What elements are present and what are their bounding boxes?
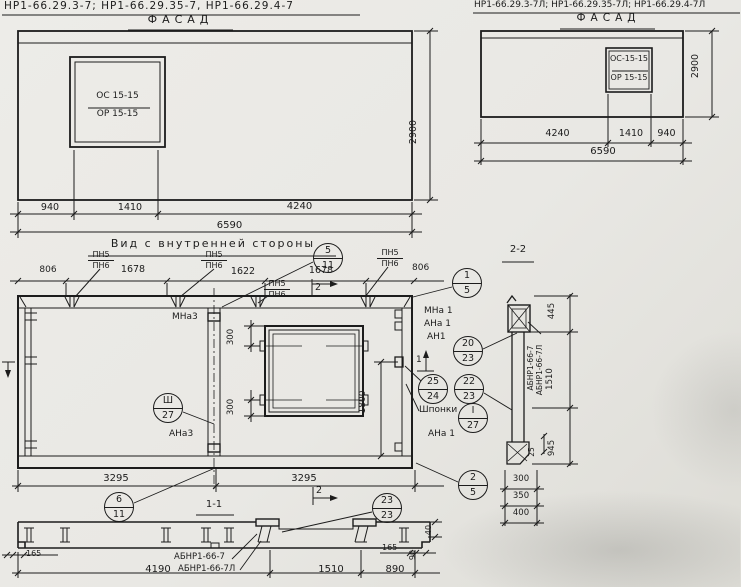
facade-right-title: НР1-66.29.3-7Л; НР1-66.29.35-7Л; НР1-66.… <box>474 1 740 11</box>
dim-300-top: 300 <box>227 327 237 347</box>
callout-bottom: 11 <box>314 259 342 273</box>
pn5-label: ПН5 <box>201 250 227 261</box>
callout-sh-27: Ш27 <box>153 393 183 423</box>
facade-right-drawing <box>473 13 740 165</box>
dim-350-22: 350 <box>504 492 538 501</box>
anchor-label-pn: ПН5ПН6 <box>201 250 227 270</box>
facade-right-window-mark-bottom: ОР 15-15 <box>608 74 650 83</box>
label-mna3: МНа3 <box>172 313 206 323</box>
facade-left-window-mark-bottom: ОР 15-15 <box>80 110 155 120</box>
callout-top: 1 <box>453 269 481 284</box>
pn6-label: ПН6 <box>377 259 403 269</box>
callout-bottom: 5 <box>453 284 481 298</box>
dim-25: 25 <box>528 444 536 460</box>
dim-1510: 1510 <box>310 564 352 575</box>
callout-bottom: 23 <box>454 352 482 366</box>
anchor-label-pn: ПН5ПН6 <box>264 279 290 299</box>
callout-bottom: 11 <box>105 508 133 522</box>
dim-6590-r: 6590 <box>572 146 634 157</box>
pn6-label: ПН6 <box>264 290 290 300</box>
section-1-1-title: 1-1 <box>196 499 232 510</box>
callout-bottom: 27 <box>154 409 182 423</box>
dim-4240: 4240 <box>262 201 337 212</box>
pn5-label: ПН5 <box>88 250 114 261</box>
callout-top: 2 <box>459 471 487 486</box>
callout-top: I <box>459 404 487 419</box>
label-ana1-bottom: АНа 1 <box>428 430 462 440</box>
section-2-2-title: 2-2 <box>502 244 534 255</box>
dim-1800: 1800 <box>359 386 369 418</box>
inner-view-title: Вид с внутренней стороны <box>92 238 334 250</box>
callout-bottom: 5 <box>459 486 487 500</box>
dim-300-22: 300 <box>504 475 538 484</box>
dim-3295-left: 3295 <box>86 473 146 484</box>
dim-940-r: 940 <box>650 129 683 139</box>
section-2-marker-top: 2 <box>315 283 327 293</box>
callout-1-5: 15 <box>452 268 482 298</box>
facade-left-window-mark-top: ОС 15-15 <box>80 92 155 102</box>
callout-25-24: 2524 <box>418 374 448 404</box>
facade-left-title: НР1-66.29.3-7; НР1-66.29.35-7, НР1-66.29… <box>4 1 364 13</box>
pn6-label: ПН6 <box>201 261 227 271</box>
dim-1410-r: 1410 <box>612 129 650 139</box>
facade-right-window-mark-top: ОС-15-15 <box>608 55 650 64</box>
callout-1-27: I27 <box>458 403 488 433</box>
callout-top: 5 <box>314 244 342 259</box>
anchor-label-pn: ПН5ПН6 <box>88 250 114 270</box>
callout-bottom: 27 <box>459 419 487 433</box>
dim-806-right: 806 <box>412 264 444 274</box>
callout-top: 23 <box>373 494 401 509</box>
dim-4190: 4190 <box>138 564 178 575</box>
pn6-label: ПН6 <box>88 261 114 271</box>
callout-5-11: 511 <box>313 243 343 273</box>
dim-2900: 2900 <box>409 112 421 152</box>
callout-top: 6 <box>105 493 133 508</box>
dim-1510-22: 1510 <box>546 357 555 401</box>
callout-20-23: 2023 <box>453 336 483 366</box>
section-2-marker-bottom: 2 <box>316 486 328 496</box>
dim-90-right: 90 <box>409 548 417 562</box>
callout-6-11: 611 <box>104 492 134 522</box>
callout-bottom: 23 <box>373 509 401 523</box>
drawing-sheet: НР1-66.29.3-7; НР1-66.29.35-7, НР1-66.29… <box>0 0 741 587</box>
callout-top: Ш <box>154 394 182 409</box>
callout-2-5: 25 <box>458 470 488 500</box>
pn5-label: ПН5 <box>377 248 403 259</box>
dim-890: 890 <box>376 564 414 575</box>
dim-1678-left: 1678 <box>110 265 156 275</box>
dim-300-bottom: 300 <box>227 397 237 417</box>
dim-165-left: 165 <box>26 550 50 559</box>
label-ana1: АНа 1 <box>424 320 458 330</box>
dim-6590: 6590 <box>192 220 267 231</box>
mark-abnr-l: АБНР1-66-7Л <box>178 565 244 574</box>
dim-4240-r: 4240 <box>525 129 590 139</box>
callout-top: 25 <box>419 375 447 390</box>
mark-abnr: АБНР1-66-7 <box>174 553 234 562</box>
dim-1410: 1410 <box>100 203 160 213</box>
dim-806-left: 806 <box>26 266 70 276</box>
dim-445: 445 <box>548 300 557 322</box>
dim-2900-r: 2900 <box>691 48 702 84</box>
callout-22-23: 2223 <box>454 374 484 404</box>
dim-3295-right: 3295 <box>274 473 334 484</box>
dim-40: 40 <box>425 523 433 537</box>
callout-23-23: 2323 <box>372 493 402 523</box>
anchor-label-pn: ПН5ПН6 <box>377 248 403 268</box>
label-an1: АН1 <box>427 333 453 343</box>
dim-90-left: 90 <box>0 548 1 562</box>
mark-abnr-l-22: АБНР1-66-7Л <box>536 338 545 402</box>
callout-top: 22 <box>455 375 483 390</box>
facade-left-view-label: ФАСАД <box>128 14 233 26</box>
label-mna1: МНа 1 <box>424 307 458 317</box>
callout-bottom: 24 <box>419 390 447 404</box>
dim-945: 945 <box>548 432 557 464</box>
label-shponki: Шпонки <box>419 406 459 416</box>
label-ana3: АНа3 <box>169 430 203 440</box>
facade-right-view-label: ФАСАД <box>561 13 656 25</box>
section-1-marker-right: 1 <box>416 356 426 366</box>
dim-165-right: 165 <box>382 544 406 553</box>
pn5-label: ПН5 <box>264 279 290 290</box>
dim-940: 940 <box>26 203 74 213</box>
callout-bottom: 23 <box>455 390 483 404</box>
callout-top: 20 <box>454 337 482 352</box>
dim-400-22: 400 <box>504 509 538 518</box>
